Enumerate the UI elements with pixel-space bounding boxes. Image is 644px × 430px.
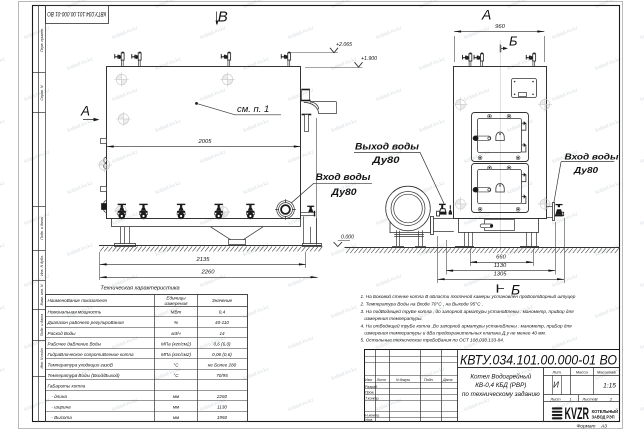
svg-text:Перв. примен.: Перв. примен. [40, 28, 44, 52]
svg-text:Пров.: Пров. [365, 391, 374, 395]
svg-text:Диапазон раБочего регулироВани: Диапазон раБочего регулироВания [47, 320, 125, 325]
svg-text:Изм: Изм [365, 378, 372, 382]
svg-text:660: 660 [496, 255, 506, 261]
svg-text:+2.065: +2.065 [336, 42, 352, 48]
svg-text:0.000: 0.000 [341, 235, 354, 241]
svg-text:Температура уходящих газоВ: Температура уходящих газоВ [48, 362, 113, 367]
svg-text:А: А [80, 104, 90, 119]
svg-text:МасштаБ: МасштаБ [597, 369, 616, 374]
svg-text:Взам. инв. N: Взам. инв. N [40, 284, 44, 305]
svg-text:НаименоВание показателя: НаименоВание показателя [48, 298, 108, 303]
svg-text:мм: мм [173, 394, 180, 399]
svg-text:Дата: Дата [442, 378, 452, 382]
svg-text:- длина: - длина [48, 394, 68, 399]
svg-text:см. п. 1: см. п. 1 [237, 104, 269, 115]
svg-text:- ширина: - ширина [48, 404, 72, 409]
svg-text:1. На Боковой стенке котла В: 1. На Боковой стенке котла В оБласти топ… [361, 293, 576, 299]
svg-text:40-110: 40-110 [215, 320, 229, 325]
svg-text:А: А [481, 7, 491, 23]
svg-text:КОТЕЛЬНЫЙ: КОТЕЛЬНЫЙ [592, 409, 619, 414]
svg-text:Масса: Масса [576, 369, 589, 374]
svg-text:1305: 1305 [494, 272, 508, 278]
svg-text:3. На подВодящей труБе котла: 3. На подВодящей труБе котла , до запорн… [361, 308, 575, 314]
svg-text:Котел Водогрейный: Котел Водогрейный [470, 373, 531, 381]
svg-text:°С: °С [173, 362, 179, 367]
svg-text:Ду80: Ду80 [330, 187, 356, 197]
svg-text:ГидраВлическое сопротиВление к: ГидраВлическое сопротиВление котла [48, 352, 134, 357]
svg-text:1130: 1130 [217, 404, 227, 409]
svg-text:МПа (кгс/см2): МПа (кгс/см2) [161, 352, 191, 357]
svg-text:мм: мм [173, 415, 180, 420]
svg-text:Разраб.: Разраб. [365, 385, 378, 389]
svg-text:- Высота: - Высота [48, 415, 73, 420]
svg-text:2260: 2260 [201, 270, 216, 276]
svg-text:Температура Воды (Вход/Выход): Температура Воды (Вход/Выход) [48, 373, 121, 378]
svg-text:0,4: 0,4 [219, 310, 226, 315]
svg-text:МВт: МВт [171, 310, 182, 315]
svg-text:не Более 280: не Более 280 [208, 362, 237, 367]
svg-text:70/95: 70/95 [216, 373, 228, 378]
svg-text:Ду80: Ду80 [573, 165, 599, 175]
svg-text:ЗАВОД РЭП: ЗАВОД РЭП [592, 414, 615, 419]
svg-text:%: % [174, 320, 178, 325]
svg-text:А3: А3 [600, 423, 607, 429]
svg-text:КВТУ.034.101.00.000-01 ВО: КВТУ.034.101.00.000-01 ВО [460, 352, 617, 367]
svg-text:Т.контр.: Т.контр. [365, 397, 380, 401]
svg-text:Значение: Значение [212, 298, 233, 303]
svg-text:4. На отВодящей труБе котла ,: 4. На отВодящей труБе котла ,Во запорной… [361, 323, 573, 329]
svg-text:измерения: измерения [165, 301, 189, 306]
svg-text:Единицы: Единицы [166, 296, 186, 301]
svg-text:В: В [218, 9, 228, 26]
svg-text:5. Остальные технические треБ: 5. Остальные технические треБоВания по О… [361, 338, 505, 343]
svg-text:0,6 (6,0): 0,6 (6,0) [213, 341, 231, 346]
svg-text:Подп.: Подп. [424, 378, 434, 382]
svg-text:Б: Б [509, 34, 518, 49]
svg-text:Ду80: Ду80 [371, 155, 399, 165]
svg-text:N докум.: N докум. [396, 378, 411, 382]
svg-text:мм: мм [173, 404, 180, 409]
svg-text:0,06 (0,6): 0,06 (0,6) [212, 352, 232, 357]
svg-text:Техническая характеристика: Техническая характеристика [100, 286, 179, 292]
svg-text:И: И [553, 381, 559, 390]
svg-text:ЛистоВ: ЛистоВ [581, 397, 597, 402]
svg-text:1:15: 1:15 [603, 383, 616, 390]
svg-text:°С: °С [173, 373, 179, 378]
svg-text:Выход воды: Выход воды [355, 141, 419, 151]
svg-text:Вход воды: Вход воды [565, 152, 619, 162]
svg-text:2260: 2260 [216, 394, 228, 399]
svg-text:1130: 1130 [494, 263, 507, 269]
svg-text:1: 1 [569, 397, 571, 402]
svg-text:КВТУ.034.101.00.000-01 ВО: КВТУ.034.101.00.000-01 ВО [47, 10, 106, 17]
svg-text:КВ-0,4 КБД (РВР): КВ-0,4 КБД (РВР) [475, 382, 526, 389]
svg-text:1950: 1950 [217, 415, 228, 420]
svg-text:Подп. и дата: Подп. и дата [40, 217, 44, 240]
svg-text:Н.контр.: Н.контр. [365, 413, 380, 417]
svg-text:KVZR: KVZR [565, 404, 590, 423]
svg-text:14: 14 [219, 331, 225, 336]
svg-text:Расход Воды: Расход Воды [48, 331, 77, 336]
svg-text:Лист: Лист [376, 378, 386, 382]
svg-text:Вход воды: Вход воды [316, 172, 371, 182]
svg-text:Инв. N дубл.: Инв. N дубл. [40, 255, 44, 276]
svg-text:960: 960 [495, 24, 505, 30]
svg-text:Формат: Формат [576, 423, 595, 429]
svg-text:2005: 2005 [198, 139, 213, 145]
svg-text:Справ. N: Справ. N [40, 85, 44, 100]
svg-text:измерения температуры.: измерения температуры. [361, 316, 423, 321]
svg-text:2135: 2135 [196, 257, 211, 263]
svg-text:РаБочее даВление Воды: РаБочее даВление Воды [48, 341, 102, 346]
svg-text:Номинальная мощность: Номинальная мощность [48, 310, 102, 315]
svg-text:по техническому заданию: по техническому заданию [462, 390, 540, 398]
svg-text:2. Температура Воды на Входе: 2. Температура Воды на Входе 70°С , на В… [360, 302, 484, 307]
svg-text:м3/ч: м3/ч [171, 331, 181, 336]
svg-text:Инв. N подл.: Инв. N подл. [40, 347, 44, 368]
svg-text:измерения температуры и дВа пр: измерения температуры и дВа предохраните… [361, 331, 547, 336]
svg-text:Подп. и дата: Подп. и дата [40, 314, 44, 337]
svg-text:+1.900: +1.900 [361, 56, 377, 62]
svg-text:Лит.: Лит. [552, 369, 562, 374]
svg-text:ГаБариты котла: ГаБариты котла [48, 383, 86, 388]
svg-text:Утв.: Утв. [365, 418, 373, 422]
svg-text:Лист: Лист [549, 397, 561, 402]
svg-text:МПа (кгс/см2): МПа (кгс/см2) [161, 341, 191, 346]
